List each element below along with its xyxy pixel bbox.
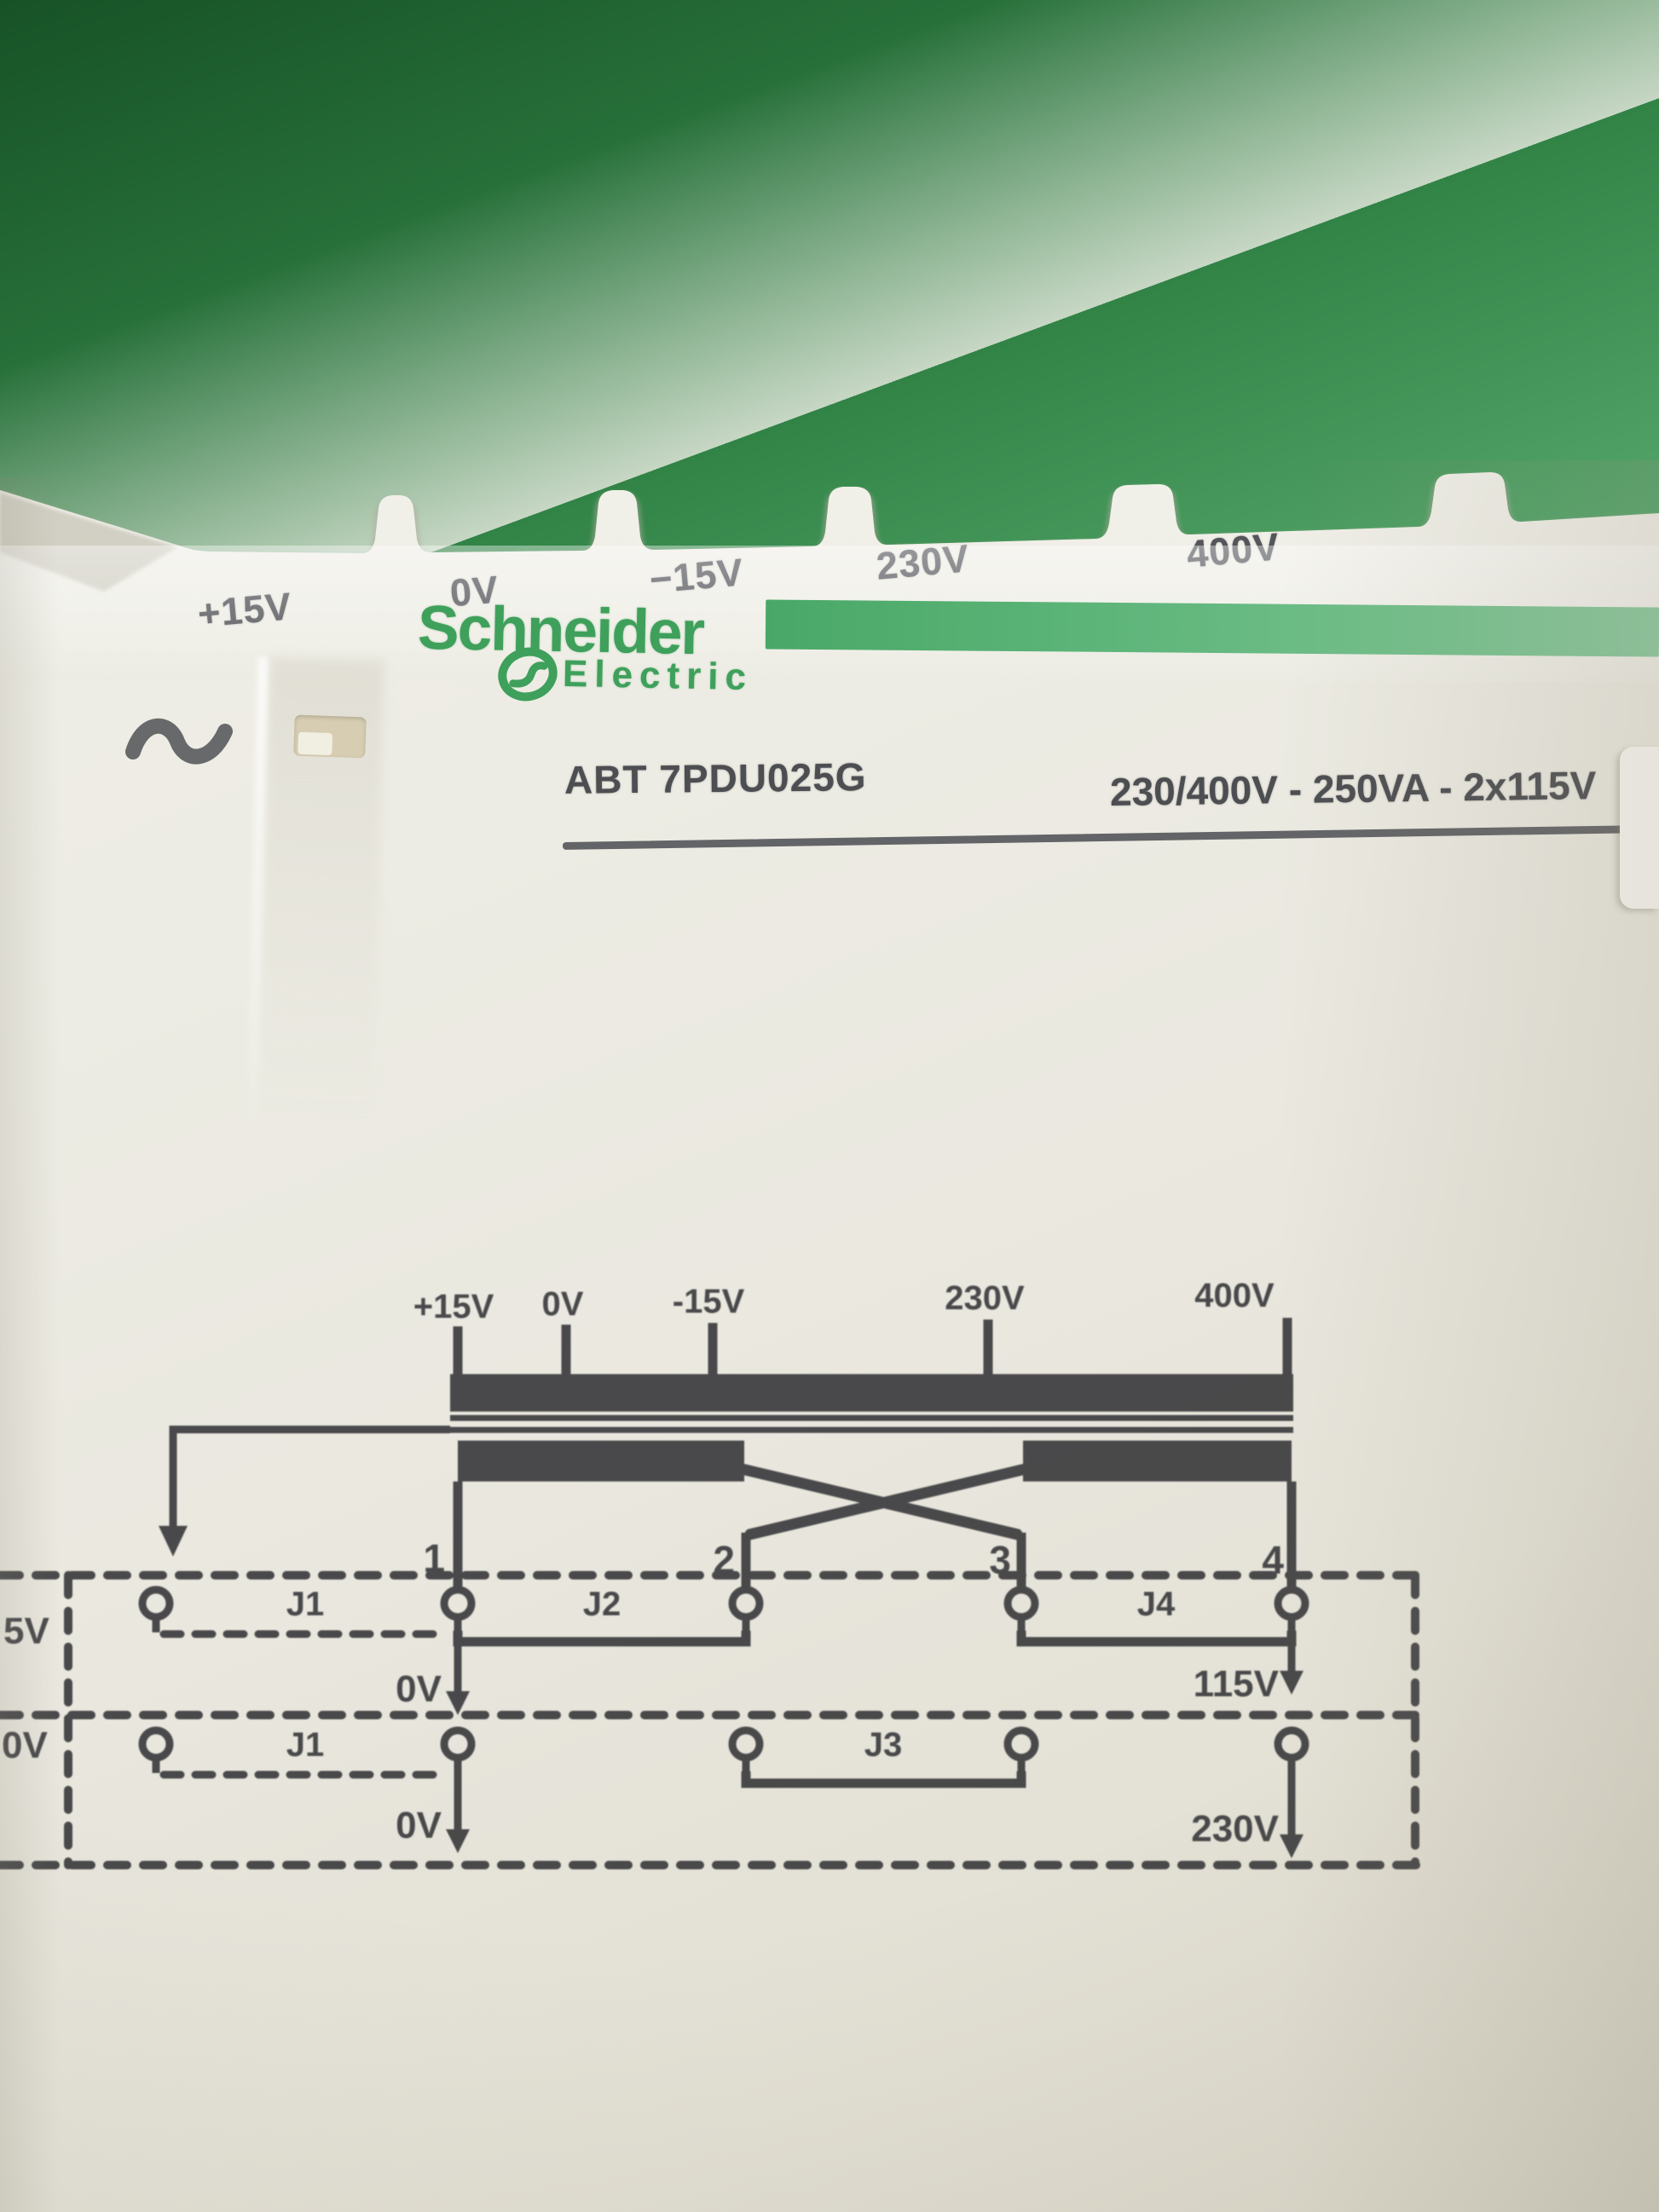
row1-jumper-j2-closed xyxy=(458,1631,746,1642)
row1-output-115v: 115V xyxy=(1194,1663,1280,1705)
core-line-top xyxy=(450,1415,1293,1421)
row2-left-label-cut: 0V xyxy=(2,1724,48,1766)
row1-jumper-j4-closed xyxy=(1021,1631,1292,1642)
photo-of-transformer-module: +15V 0V −15V 230V 400V Schneider Electri… xyxy=(0,0,1659,2212)
row2-output-230v: 230V xyxy=(1191,1808,1279,1850)
wiring-diagram: +15V 0V -15V 230V 400V xyxy=(0,0,1659,2212)
crossover-wires xyxy=(744,1470,1023,1534)
row2-jumper-label-j1: J1 xyxy=(286,1726,325,1764)
diagram-tap-label-minus15v: -15V xyxy=(673,1283,745,1320)
config-row-115v: J1 J2 J4 0V 115V 5V xyxy=(3,1585,1305,1715)
screen-arrow-icon xyxy=(159,1526,188,1556)
diagram-tap-label-400v: 400V xyxy=(1194,1277,1275,1314)
secondary-winding-left xyxy=(458,1441,744,1481)
secondary-winding-right xyxy=(1023,1441,1292,1481)
diagram-tap-label-plus15v: +15V xyxy=(413,1288,494,1325)
screen-lead xyxy=(173,1429,450,1531)
row2-jumper-label-j3: J3 xyxy=(864,1726,903,1764)
row2-0v-arrow-icon xyxy=(446,1829,470,1853)
row2-output-0v: 0V xyxy=(396,1805,442,1846)
row1-jumper-label-j1: J1 xyxy=(286,1585,325,1623)
row1-output-0v: 0V xyxy=(396,1668,442,1710)
primary-winding-bar xyxy=(450,1374,1293,1412)
tap-ticks xyxy=(458,1318,1287,1377)
config-row-230v: J1 J3 0V 230V 0V xyxy=(2,1724,1305,1858)
core-line-bottom xyxy=(450,1427,1293,1433)
row2-jumper-j3-closed xyxy=(746,1771,1021,1783)
row1-jumper-label-j4: J4 xyxy=(1137,1585,1176,1623)
diagram-tap-label-0v: 0V xyxy=(542,1285,584,1323)
row1-jumper-label-j2: J2 xyxy=(583,1585,621,1623)
row1-115v-arrow-icon xyxy=(1280,1671,1303,1695)
row2-230v-arrow-icon xyxy=(1280,1834,1303,1858)
diagram-tap-label-230v: 230V xyxy=(945,1279,1025,1317)
row1-left-label-cut: 5V xyxy=(3,1610,49,1652)
